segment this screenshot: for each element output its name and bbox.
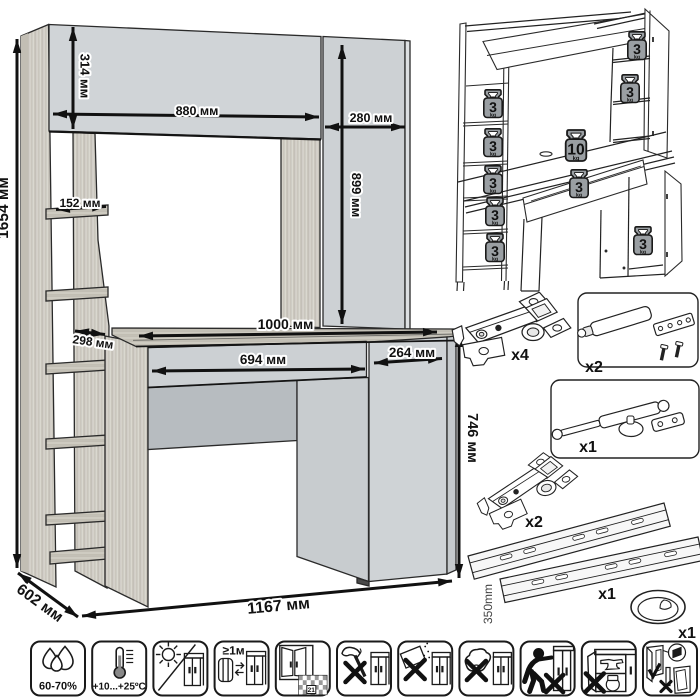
svg-text:+10...+25ºC: +10...+25ºC: [93, 682, 146, 693]
svg-text:≥1м: ≥1м: [223, 644, 245, 658]
svg-text:880 мм: 880 мм: [176, 104, 219, 118]
svg-text:x1: x1: [678, 625, 696, 642]
svg-text:kg: kg: [634, 55, 640, 61]
svg-text:350mm: 350mm: [481, 584, 495, 624]
svg-text:746 мм: 746 мм: [464, 413, 480, 463]
svg-text:899 мм: 899 мм: [349, 173, 364, 218]
svg-text:264 мм: 264 мм: [389, 345, 435, 360]
svg-text:60-70%: 60-70%: [39, 681, 77, 693]
svg-text:kg: kg: [490, 189, 496, 195]
svg-text:1654 мм: 1654 мм: [0, 177, 12, 239]
svg-text:kg: kg: [627, 98, 633, 104]
svg-text:kg: kg: [492, 221, 498, 227]
svg-text:314 мм: 314 мм: [78, 54, 93, 99]
svg-text:x2: x2: [525, 514, 543, 531]
svg-text:x2: x2: [585, 359, 603, 376]
svg-text:694 мм: 694 мм: [240, 352, 286, 367]
svg-text:21: 21: [308, 687, 316, 694]
svg-text:kg: kg: [640, 250, 646, 256]
svg-text:152 мм: 152 мм: [59, 196, 100, 210]
svg-text:x1: x1: [579, 439, 597, 456]
svg-text:kg: kg: [573, 156, 580, 163]
svg-text:x4: x4: [511, 347, 529, 364]
svg-text:kg: kg: [490, 152, 496, 158]
svg-text:kg: kg: [576, 193, 582, 199]
svg-text:1000 мм: 1000 мм: [258, 316, 314, 332]
svg-text:280 мм: 280 мм: [350, 111, 393, 125]
svg-text:x1: x1: [598, 586, 616, 603]
svg-text:kg: kg: [492, 257, 498, 263]
svg-text:kg: kg: [490, 113, 496, 119]
